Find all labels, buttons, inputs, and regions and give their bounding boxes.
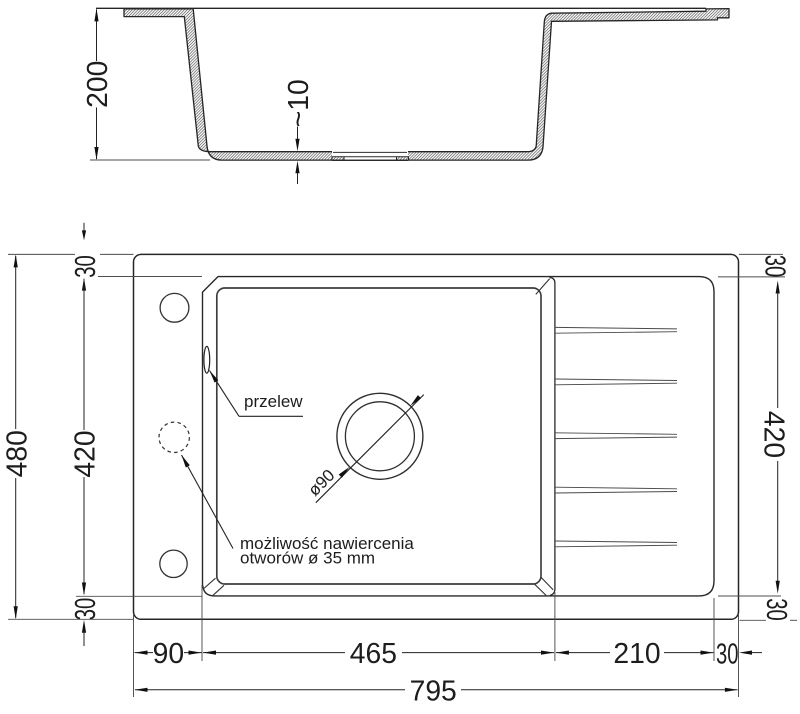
svg-text:90: 90 <box>153 637 184 669</box>
svg-text:480: 480 <box>1 430 33 477</box>
svg-text:200: 200 <box>81 61 113 108</box>
svg-text:otworów ø 35 mm: otworów ø 35 mm <box>240 548 375 567</box>
svg-text:420: 420 <box>69 430 101 477</box>
svg-text:~10: ~10 <box>282 79 314 127</box>
svg-text:30: 30 <box>761 598 793 621</box>
svg-text:30: 30 <box>759 255 791 278</box>
svg-text:420: 420 <box>758 411 790 458</box>
svg-text:przelew: przelew <box>244 392 303 411</box>
svg-text:795: 795 <box>410 674 457 706</box>
svg-text:30: 30 <box>69 598 101 621</box>
svg-text:30: 30 <box>716 638 739 670</box>
svg-text:465: 465 <box>350 637 397 669</box>
svg-text:30: 30 <box>69 255 101 278</box>
svg-text:210: 210 <box>613 637 660 669</box>
